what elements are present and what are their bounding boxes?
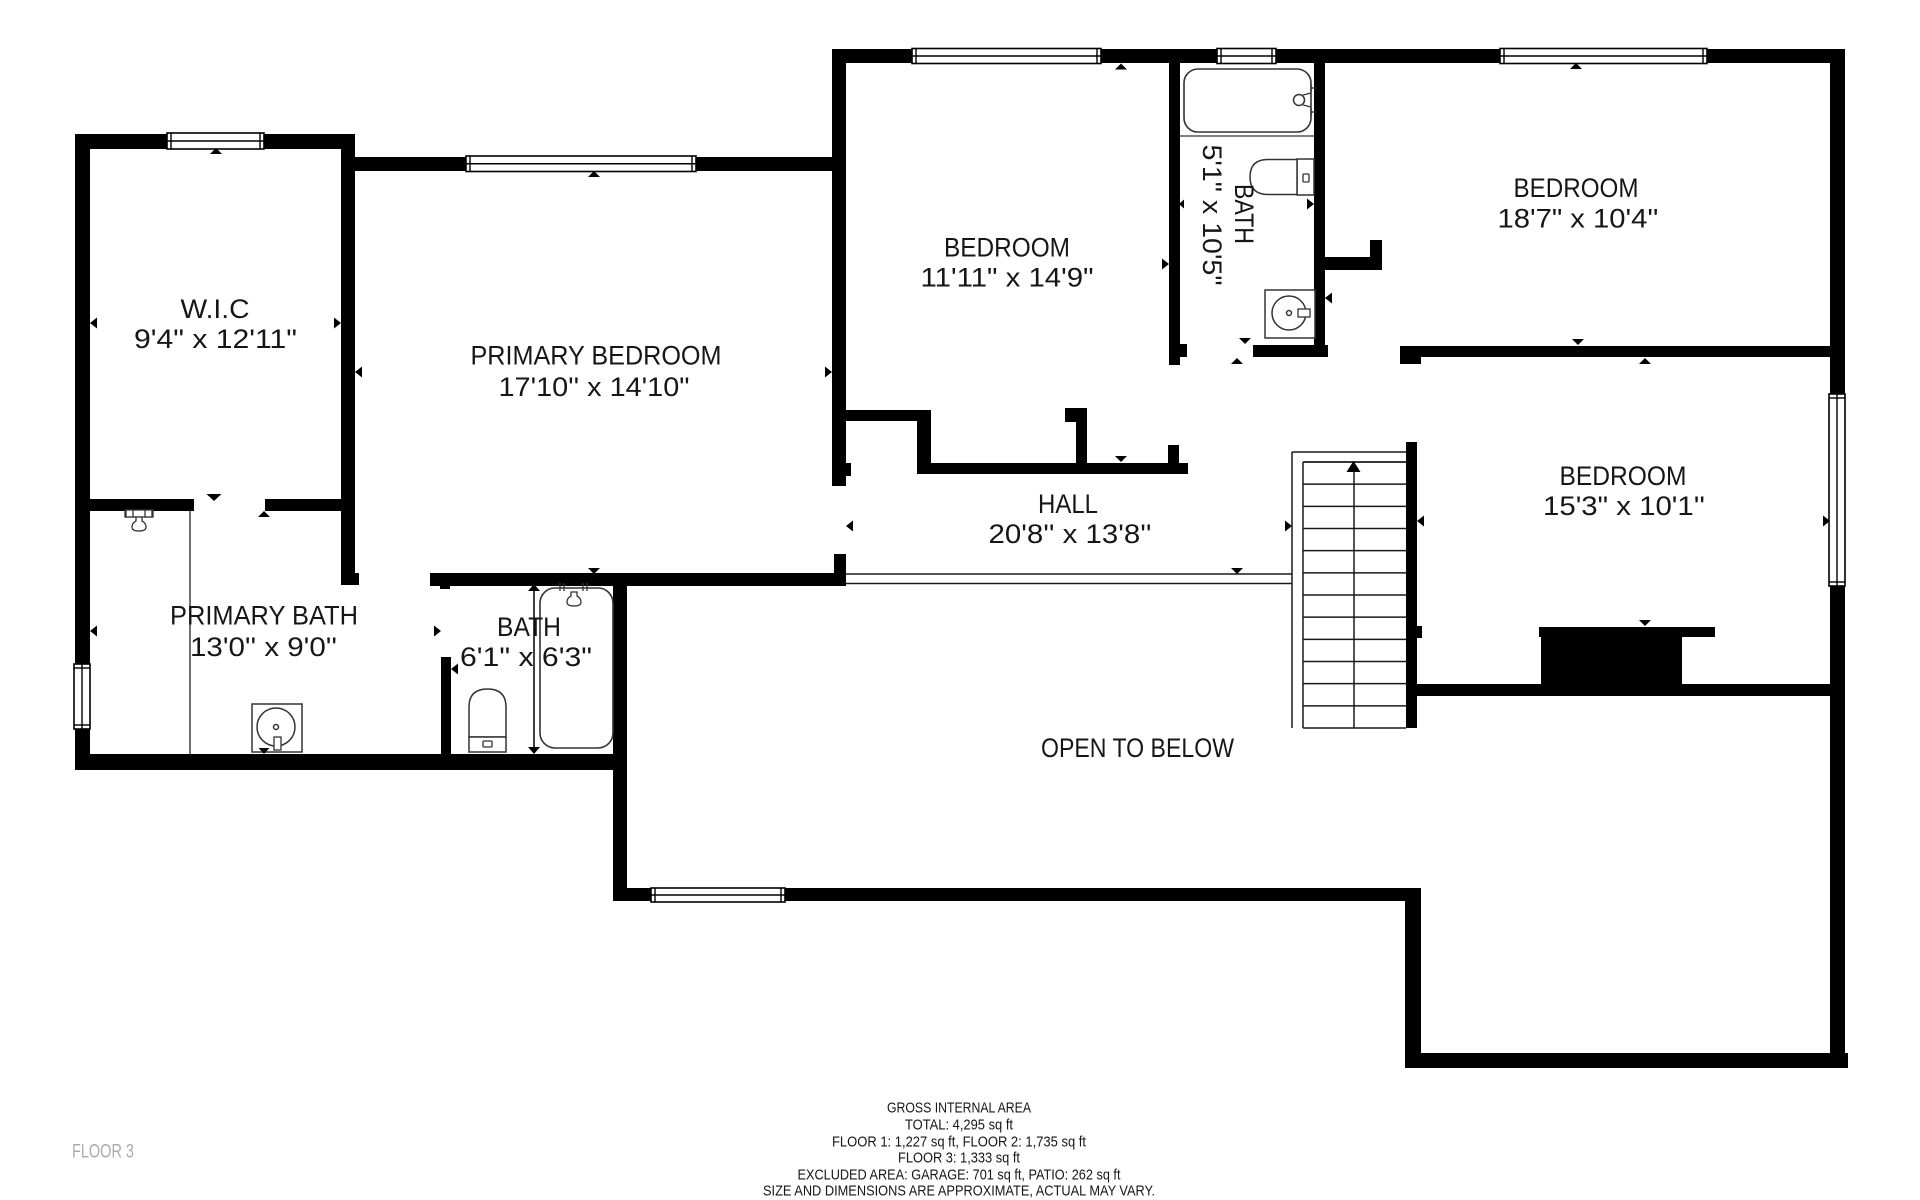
svg-text:15'3" x 10'1'': 15'3" x 10'1'' xyxy=(1543,491,1705,521)
svg-text:BEDROOM: BEDROOM xyxy=(944,233,1070,263)
svg-text:TOTAL: 4,295 sq ft: TOTAL: 4,295 sq ft xyxy=(905,1117,1014,1134)
svg-text:OPEN TO BELOW: OPEN TO BELOW xyxy=(1041,733,1234,763)
svg-text:5'1" x 10'5": 5'1" x 10'5" xyxy=(1197,145,1227,286)
svg-text:PRIMARY BATH: PRIMARY BATH xyxy=(170,601,358,631)
svg-text:20'8'' x 13'8'': 20'8'' x 13'8'' xyxy=(989,519,1152,549)
svg-text:9'4" x 12'11": 9'4" x 12'11" xyxy=(134,324,297,354)
svg-text:FLOOR 1: 1,227 sq ft, FLOOR 2:: FLOOR 1: 1,227 sq ft, FLOOR 2: 1,735 sq … xyxy=(832,1134,1087,1151)
svg-text:BATH: BATH xyxy=(1229,184,1259,244)
svg-text:PRIMARY BEDROOM: PRIMARY BEDROOM xyxy=(471,341,722,371)
svg-text:BEDROOM: BEDROOM xyxy=(1560,461,1687,491)
svg-text:FLOOR 3: FLOOR 3 xyxy=(72,1142,134,1163)
svg-text:SIZE AND DIMENSIONS ARE APPROX: SIZE AND DIMENSIONS ARE APPROXIMATE, ACT… xyxy=(763,1183,1155,1200)
svg-text:HALL: HALL xyxy=(1038,489,1098,519)
svg-text:13'0'' x 9'0'': 13'0'' x 9'0'' xyxy=(190,632,337,662)
svg-text:BEDROOM: BEDROOM xyxy=(1514,173,1639,203)
svg-text:11'11" x 14'9": 11'11" x 14'9" xyxy=(921,263,1094,293)
svg-text:17'10'' x 14'10": 17'10'' x 14'10" xyxy=(499,372,690,402)
svg-text:FLOOR 3: 1,333 sq ft: FLOOR 3: 1,333 sq ft xyxy=(898,1150,1021,1167)
svg-text:18'7" x 10'4'': 18'7" x 10'4'' xyxy=(1498,204,1659,234)
svg-text:EXCLUDED AREA: GARAGE: 701 sq: EXCLUDED AREA: GARAGE: 701 sq ft, PATIO:… xyxy=(798,1167,1122,1184)
svg-text:W.I.C: W.I.C xyxy=(181,294,250,324)
svg-text:6'1" x 6'3": 6'1" x 6'3" xyxy=(460,642,592,672)
svg-text:BATH: BATH xyxy=(497,612,561,642)
svg-text:GROSS INTERNAL AREA: GROSS INTERNAL AREA xyxy=(887,1100,1031,1117)
